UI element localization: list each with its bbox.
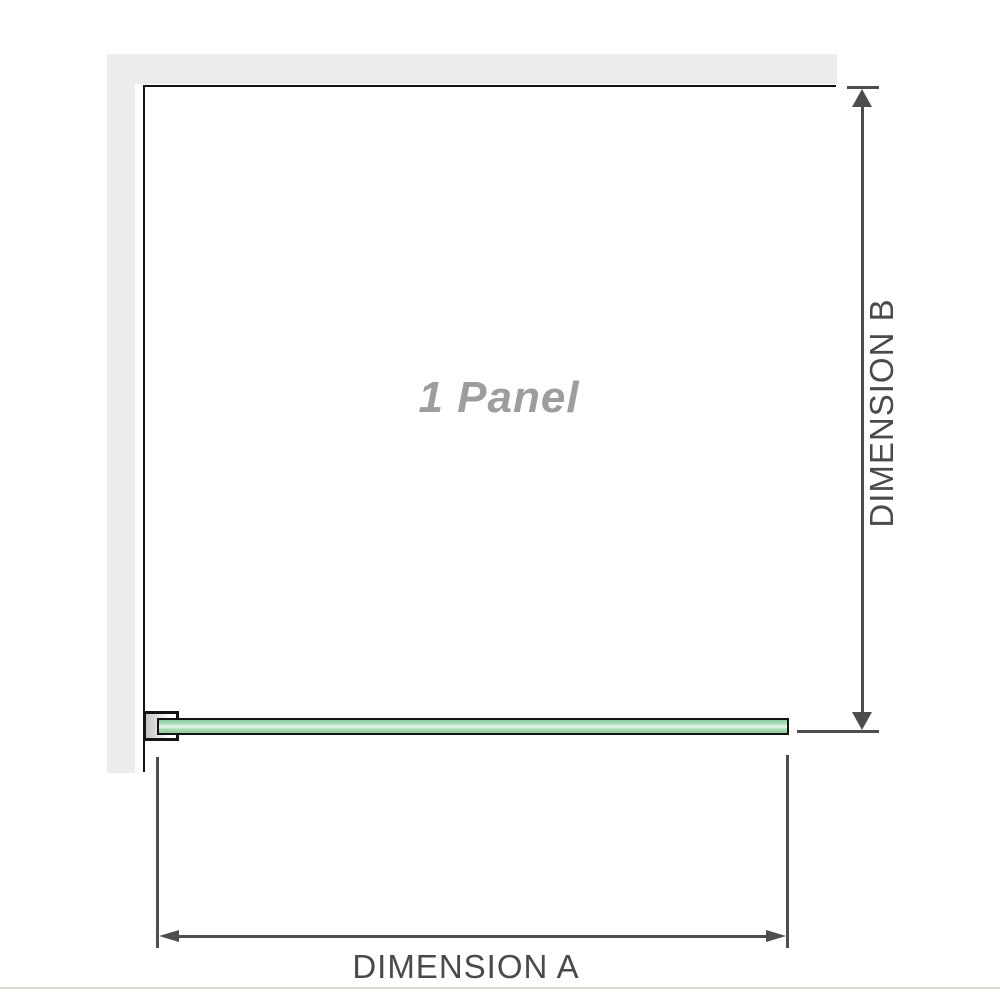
wall-segment-left	[107, 54, 135, 773]
glass-panel-plan	[157, 718, 789, 735]
dimension-a-extension-left	[156, 757, 159, 948]
dimension-a-label: DIMENSION A	[352, 948, 579, 986]
panel-outline-left	[143, 85, 145, 772]
panel-outline-top	[143, 85, 836, 87]
dimension-b-arrow-down-icon	[852, 712, 872, 730]
dimension-a-line	[165, 935, 780, 938]
shower-screen-diagram: 1 Panel DIMENSION B DIMENSION A	[0, 0, 1000, 1000]
wall-segment-top	[107, 54, 837, 84]
dimension-b-arrow-up-icon	[852, 89, 872, 107]
dimension-b-label: DIMENSION B	[863, 298, 901, 527]
dimension-a-extension-right	[786, 755, 789, 948]
panel-count-label: 1 Panel	[418, 373, 579, 423]
dimension-a-arrow-left-icon	[159, 930, 179, 942]
dimension-a-arrow-right-icon	[766, 930, 786, 942]
bottom-edge-rule	[0, 987, 1000, 989]
dimension-b-tick-bottom	[797, 730, 879, 733]
